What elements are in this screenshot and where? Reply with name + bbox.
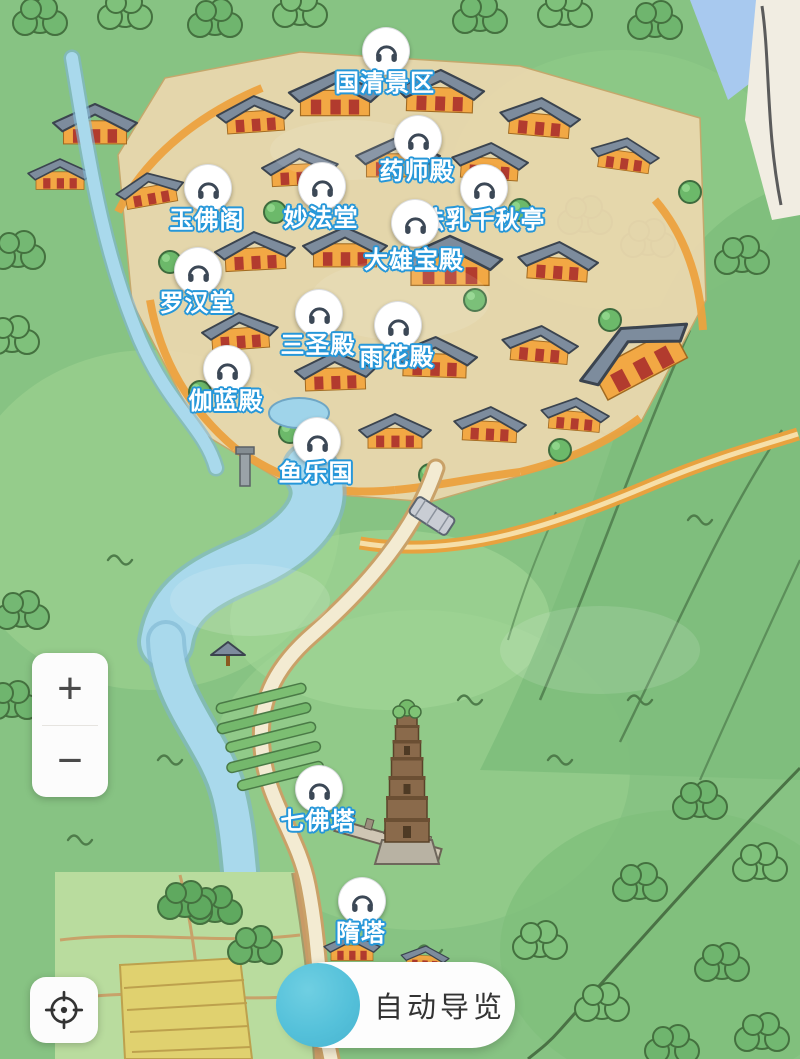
poi-label: 法乳千秋亭 [421, 208, 546, 234]
headphones-icon [373, 39, 400, 66]
poi-label: 隋塔 [336, 921, 386, 947]
zoom-out-button[interactable]: − [32, 726, 108, 798]
poi-label: 药师殿 [380, 159, 455, 185]
auto-tour-circle-icon [276, 963, 360, 1047]
audio-guide-marker[interactable] [184, 164, 232, 212]
audio-guide-marker[interactable] [174, 247, 222, 295]
audio-guide-marker[interactable] [295, 289, 343, 337]
crosshair-icon [44, 990, 84, 1030]
audio-guide-marker[interactable] [460, 164, 508, 212]
audio-guide-marker[interactable] [394, 115, 442, 163]
poi-label: 玉佛阁 [170, 208, 245, 234]
zoom-control: + − [32, 653, 108, 797]
poi-label: 国清景区 [335, 71, 435, 97]
poi-label: 罗汉堂 [160, 291, 235, 317]
audio-guide-marker[interactable] [362, 27, 410, 75]
locate-button[interactable] [30, 977, 98, 1043]
headphones-icon [195, 176, 222, 203]
poi-layer: 国清景区 药师殿 玉佛阁 [0, 0, 800, 1059]
audio-guide-marker[interactable] [295, 765, 343, 813]
poi-label: 妙法堂 [284, 206, 359, 232]
poi-label: 鱼乐国 [279, 461, 354, 487]
headphones-icon [349, 889, 376, 916]
headphones-icon [405, 127, 432, 154]
auto-tour-button[interactable]: 自动导览 [283, 962, 515, 1048]
headphones-icon [471, 176, 498, 203]
headphones-icon [402, 211, 429, 238]
headphones-icon [309, 174, 336, 201]
audio-guide-marker[interactable] [338, 877, 386, 925]
map-screen: 国清景区 药师殿 玉佛阁 [0, 0, 800, 1059]
poi-label: 伽蓝殿 [189, 389, 264, 415]
headphones-icon [306, 301, 333, 328]
headphones-icon [304, 429, 331, 456]
poi-label: 雨花殿 [360, 345, 435, 371]
auto-tour-label: 自动导览 [365, 984, 515, 1026]
headphones-icon [385, 313, 412, 340]
audio-guide-marker[interactable] [374, 301, 422, 349]
headphones-icon [306, 777, 333, 804]
audio-guide-marker[interactable] [203, 345, 251, 393]
headphones-icon [185, 259, 212, 286]
poi-label: 大雄宝殿 [364, 248, 464, 274]
audio-guide-marker[interactable] [293, 417, 341, 465]
headphones-icon [214, 357, 241, 384]
zoom-in-button[interactable]: + [32, 653, 108, 725]
poi-label: 七佛塔 [281, 809, 356, 835]
poi-label: 三圣殿 [281, 333, 356, 359]
audio-guide-marker[interactable] [298, 162, 346, 210]
audio-guide-marker[interactable] [391, 199, 439, 247]
